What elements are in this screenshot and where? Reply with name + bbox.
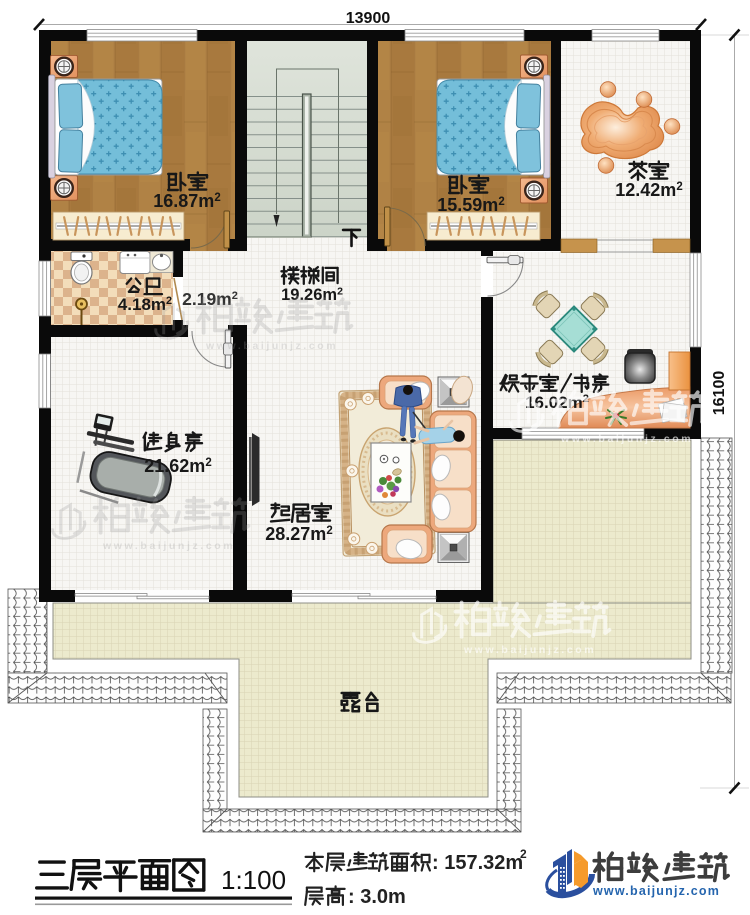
svg-text:16.87m2: 16.87m2 xyxy=(153,191,220,211)
svg-text:: 157.32m: : 157.32m xyxy=(432,852,523,874)
svg-text:www.baijunjz.com: www.baijunjz.com xyxy=(560,433,693,445)
svg-text:www.baijunjz.com: www.baijunjz.com xyxy=(592,884,720,898)
svg-text:www.baijunjz.com: www.baijunjz.com xyxy=(205,340,338,352)
svg-text:www.baijunjz.com: www.baijunjz.com xyxy=(102,540,235,552)
svg-text:1:100: 1:100 xyxy=(221,865,286,895)
svg-text:: 3.0m: : 3.0m xyxy=(348,886,406,908)
svg-text:12.42m2: 12.42m2 xyxy=(615,180,682,200)
svg-text:28.27m2: 28.27m2 xyxy=(265,524,332,544)
svg-text:13900: 13900 xyxy=(346,10,391,27)
svg-text:21.62m2: 21.62m2 xyxy=(144,456,211,476)
svg-text:15.59m2: 15.59m2 xyxy=(437,195,504,215)
svg-text:www.baijunjz.com: www.baijunjz.com xyxy=(463,644,596,656)
svg-text:2: 2 xyxy=(520,847,527,861)
svg-text:16100: 16100 xyxy=(711,371,728,416)
